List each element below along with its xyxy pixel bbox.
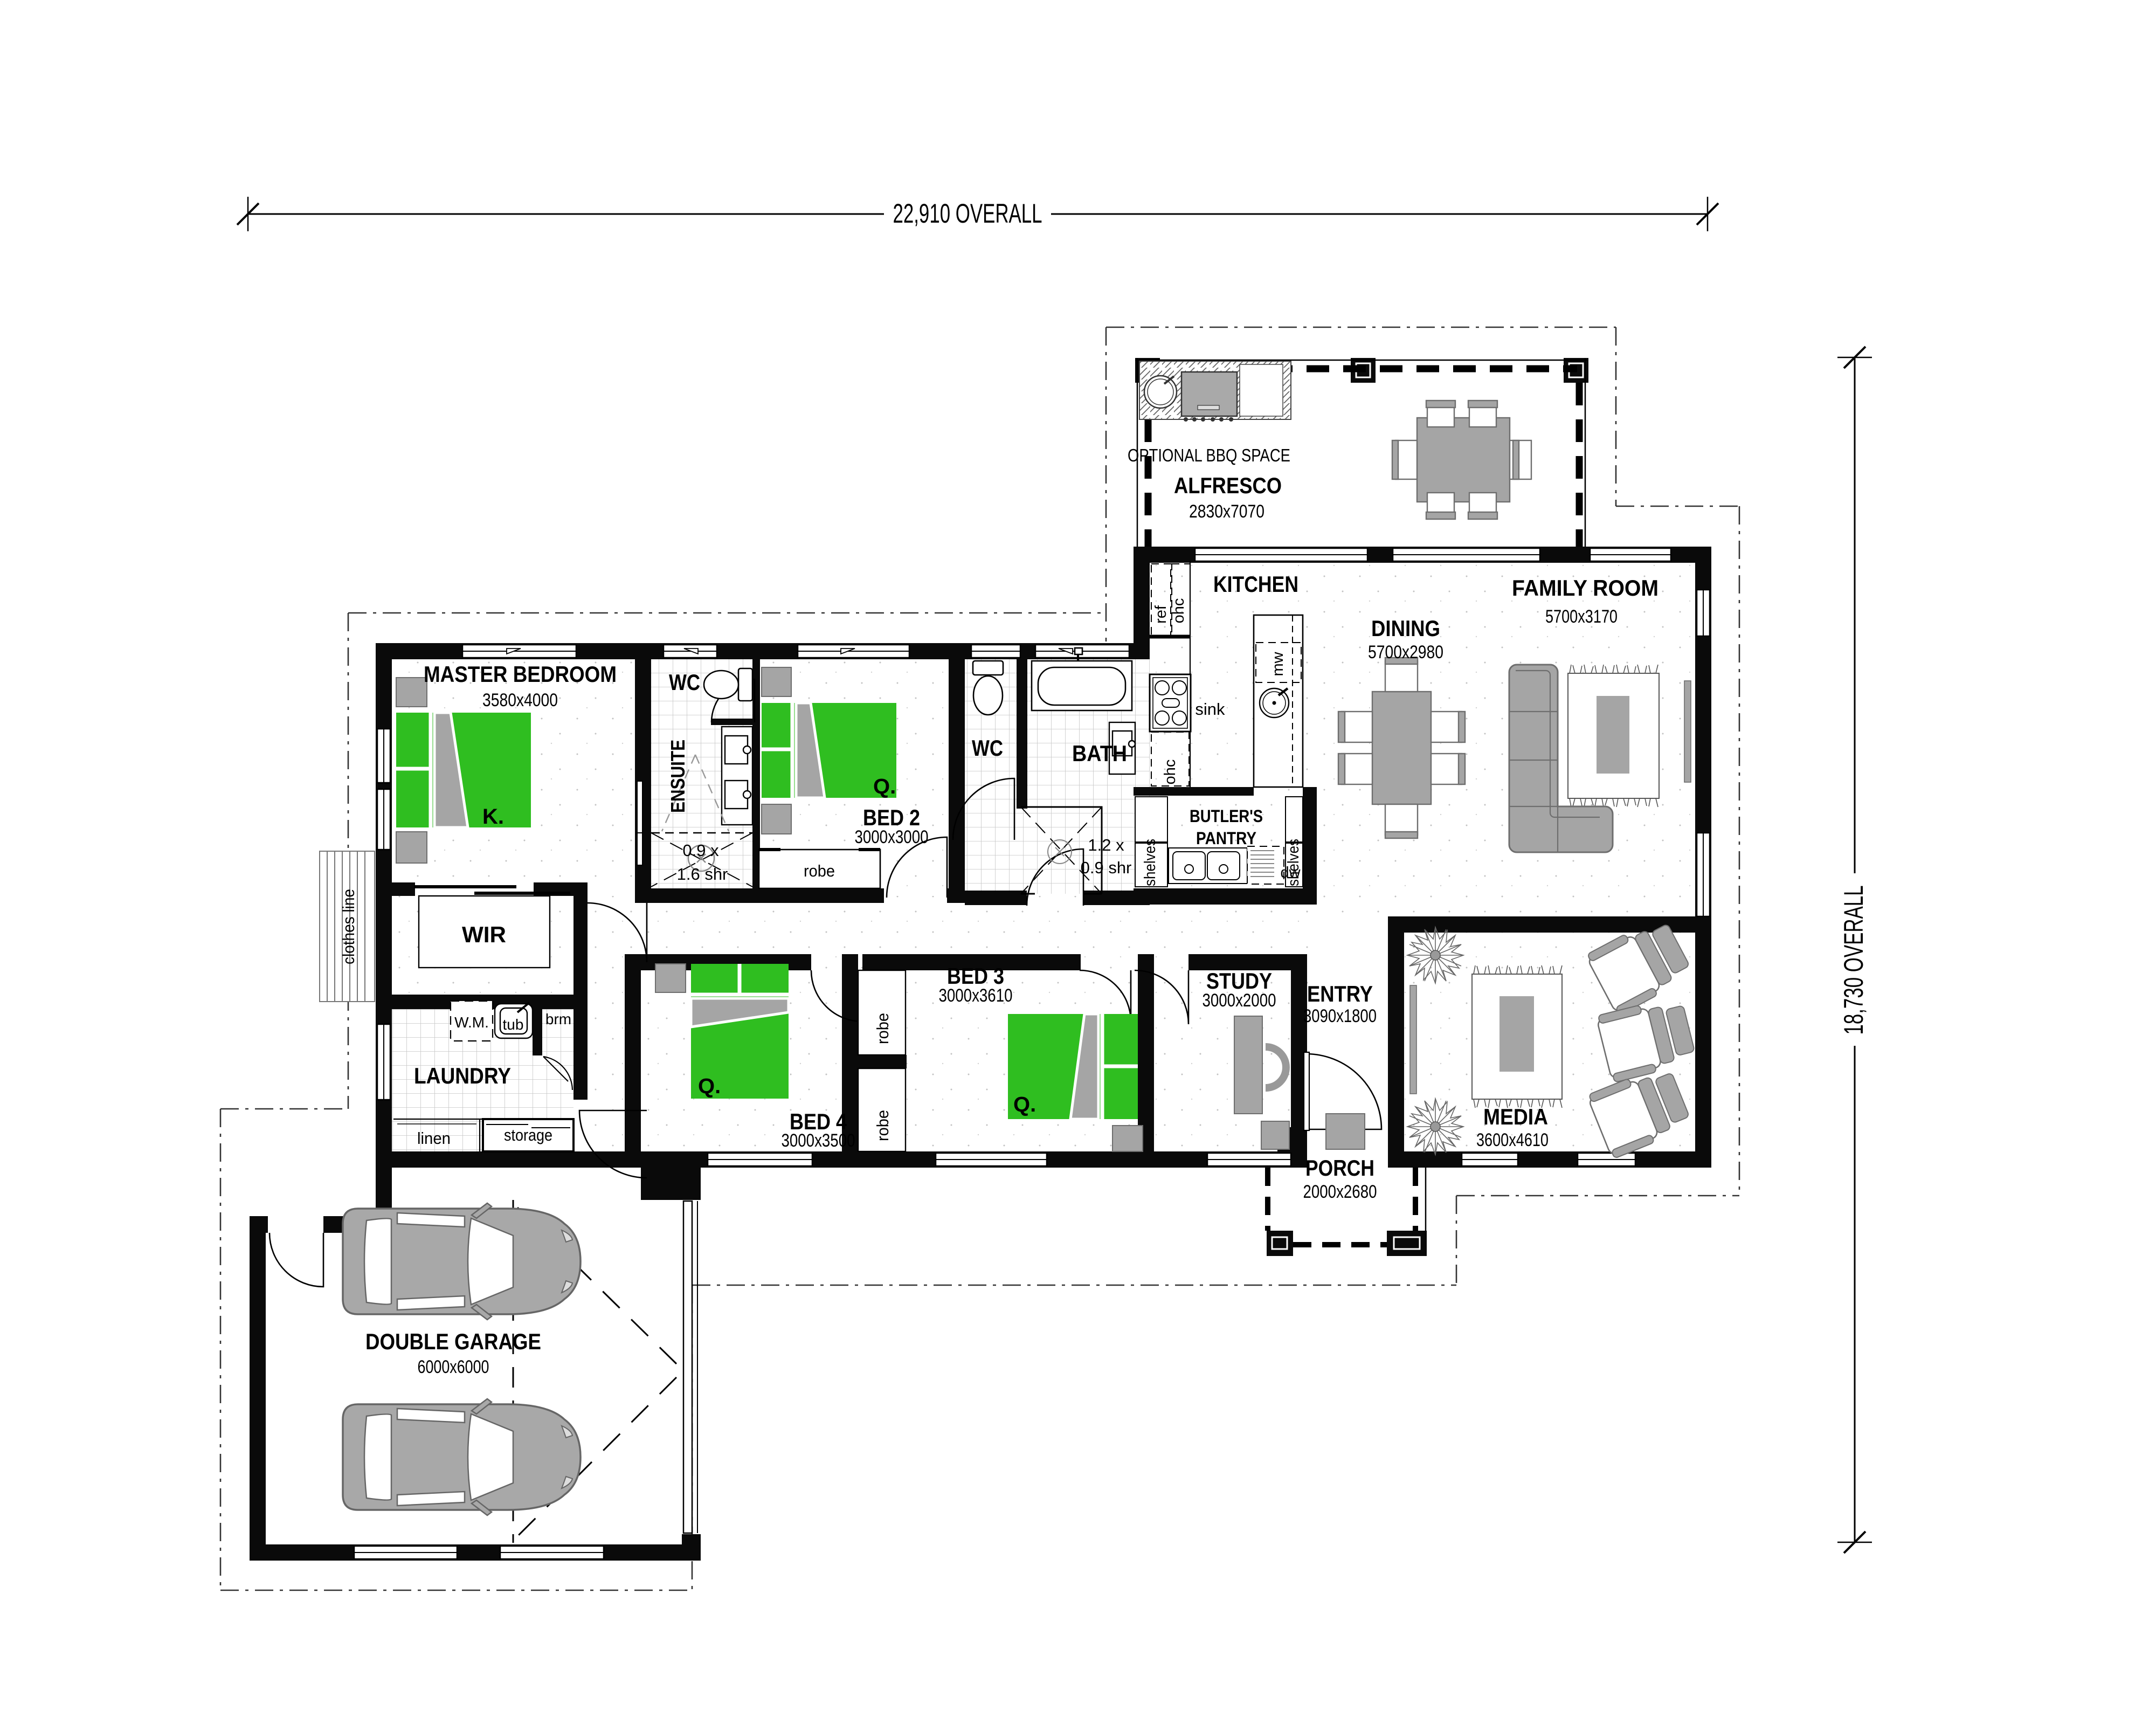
svg-text:1.6 shr: 1.6 shr xyxy=(677,865,728,884)
svg-text:Q.: Q. xyxy=(698,1074,721,1098)
svg-text:22,910 OVERALL: 22,910 OVERALL xyxy=(893,198,1042,229)
svg-text:STUDY: STUDY xyxy=(1206,968,1272,993)
svg-text:KITCHEN: KITCHEN xyxy=(1213,571,1298,597)
svg-text:tub: tub xyxy=(503,1016,524,1033)
svg-text:DINING: DINING xyxy=(1371,616,1440,641)
svg-text:DOUBLE GARAGE: DOUBLE GARAGE xyxy=(365,1329,541,1354)
svg-text:ohc: ohc xyxy=(1162,760,1179,785)
svg-text:18,730 OVERALL: 18,730 OVERALL xyxy=(1839,886,1869,1035)
svg-text:W.M.: W.M. xyxy=(454,1014,489,1031)
svg-text:robe: robe xyxy=(873,1110,892,1141)
svg-text:3600x4610: 3600x4610 xyxy=(1476,1130,1549,1150)
svg-text:WC: WC xyxy=(972,735,1003,761)
svg-text:FAMILY ROOM: FAMILY ROOM xyxy=(1512,575,1659,601)
svg-text:5700x3170: 5700x3170 xyxy=(1545,606,1618,627)
svg-text:shelves: shelves xyxy=(1142,839,1159,886)
svg-text:ohc: ohc xyxy=(1170,598,1187,624)
svg-text:LAUNDRY: LAUNDRY xyxy=(414,1063,511,1088)
svg-text:3580x4000: 3580x4000 xyxy=(482,690,558,710)
svg-text:dw: dw xyxy=(1280,864,1301,881)
svg-text:storage: storage xyxy=(504,1126,552,1144)
svg-text:3000x3500: 3000x3500 xyxy=(782,1130,855,1151)
svg-text:brm: brm xyxy=(545,1011,571,1027)
svg-text:MEDIA: MEDIA xyxy=(1483,1104,1548,1129)
svg-text:WC: WC xyxy=(669,670,700,695)
svg-text:OPTIONAL BBQ SPACE: OPTIONAL BBQ SPACE xyxy=(1128,445,1290,465)
svg-text:ENSUITE: ENSUITE xyxy=(667,740,689,813)
svg-text:1.2 x: 1.2 x xyxy=(1088,836,1124,854)
svg-text:3000x3000: 3000x3000 xyxy=(855,827,929,847)
svg-text:BATH: BATH xyxy=(1072,741,1127,766)
svg-text:ALFRESCO: ALFRESCO xyxy=(1174,473,1282,498)
svg-text:0.9 shr: 0.9 shr xyxy=(1081,858,1132,877)
svg-text:linen: linen xyxy=(417,1129,451,1148)
svg-text:PANTRY: PANTRY xyxy=(1196,829,1256,848)
svg-text:Q.: Q. xyxy=(1013,1093,1036,1116)
svg-text:K.: K. xyxy=(482,805,504,829)
svg-text:BED 2: BED 2 xyxy=(863,805,920,830)
svg-text:5700x2980: 5700x2980 xyxy=(1368,642,1443,663)
svg-text:2830x7070: 2830x7070 xyxy=(1189,501,1264,522)
svg-text:WIR: WIR xyxy=(462,922,506,947)
svg-text:2000x2680: 2000x2680 xyxy=(1303,1182,1377,1202)
svg-text:6000x6000: 6000x6000 xyxy=(418,1357,489,1377)
svg-text:ref: ref xyxy=(1152,605,1170,624)
svg-text:BED 3: BED 3 xyxy=(947,963,1004,989)
svg-text:BUTLER'S: BUTLER'S xyxy=(1190,806,1263,826)
svg-text:MASTER BEDROOM: MASTER BEDROOM xyxy=(424,661,617,687)
svg-text:mw: mw xyxy=(1269,651,1287,676)
svg-text:clothes line: clothes line xyxy=(339,889,358,964)
svg-text:3090x1800: 3090x1800 xyxy=(1303,1006,1377,1026)
svg-text:Q.: Q. xyxy=(873,775,896,798)
svg-text:0.9 x: 0.9 x xyxy=(682,841,719,860)
svg-text:3000x3610: 3000x3610 xyxy=(939,985,1013,1006)
svg-text:robe: robe xyxy=(804,861,835,880)
svg-text:3000x2000: 3000x2000 xyxy=(1203,990,1276,1011)
svg-text:ENTRY: ENTRY xyxy=(1307,981,1373,1006)
svg-text:sink: sink xyxy=(1195,700,1225,719)
svg-text:PORCH: PORCH xyxy=(1305,1155,1374,1181)
svg-text:robe: robe xyxy=(873,1013,892,1044)
